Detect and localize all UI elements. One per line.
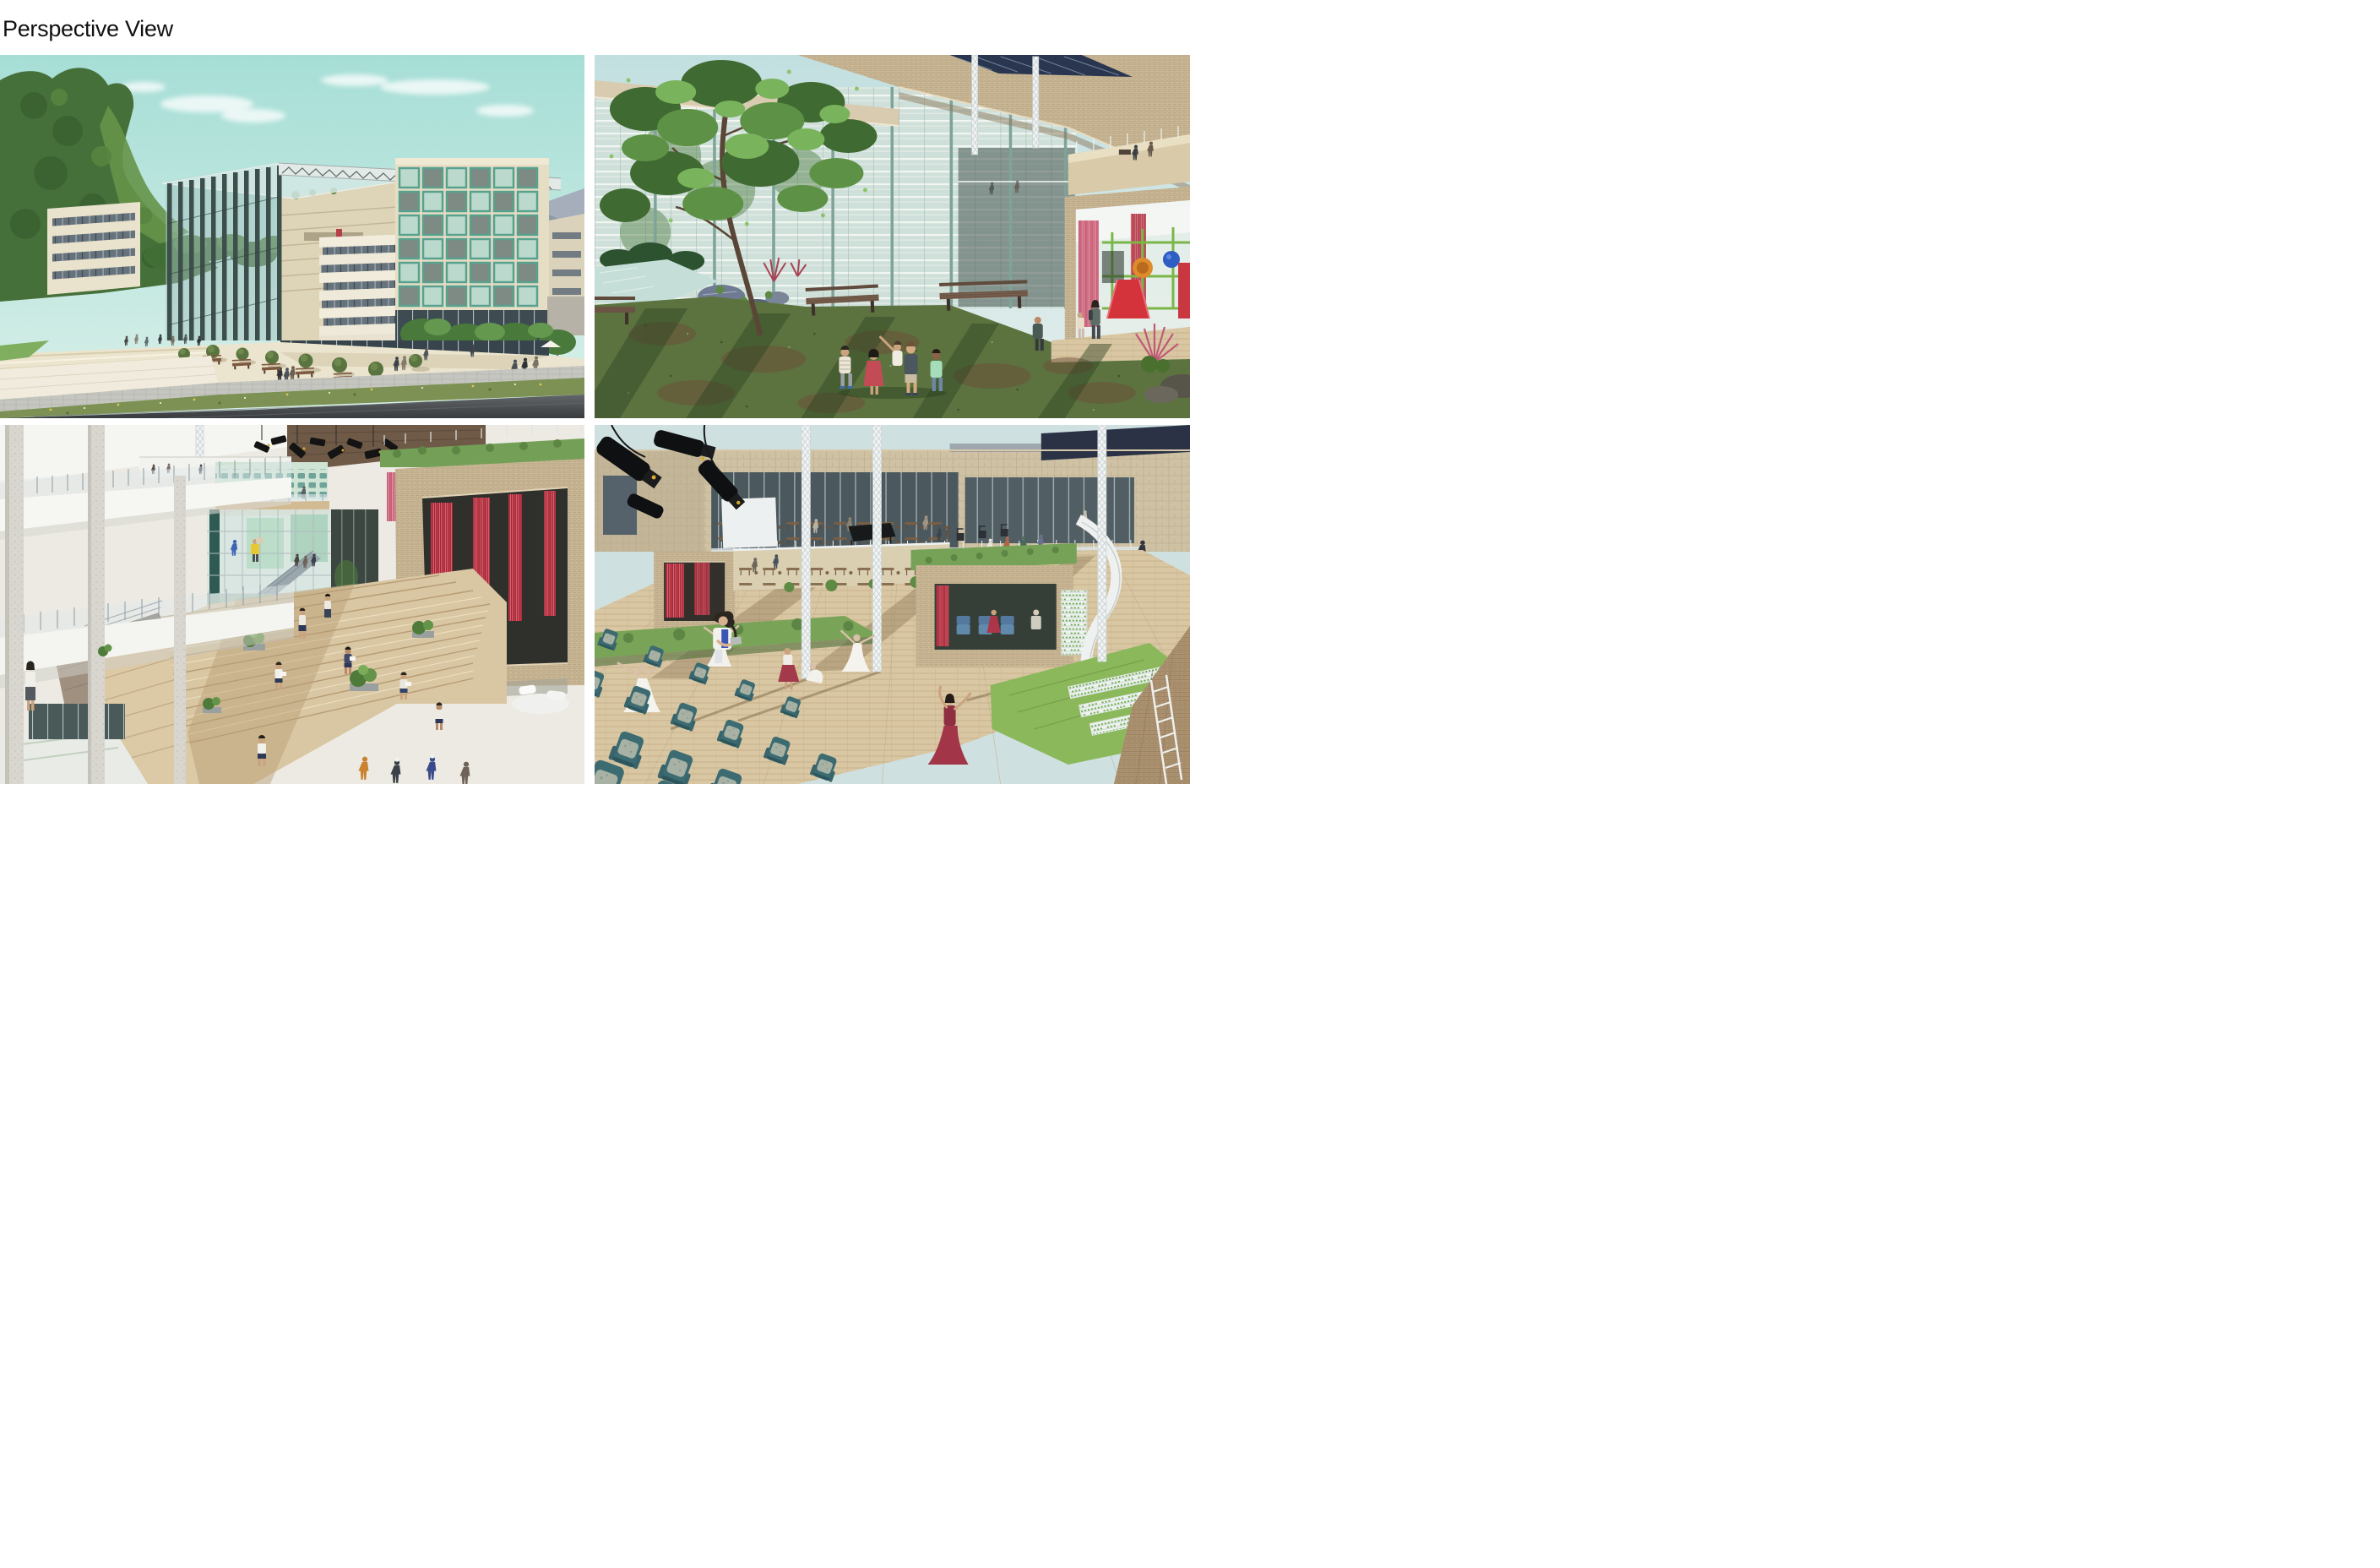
left-office-block	[47, 202, 140, 295]
residential-tower	[395, 158, 549, 344]
hydroponic-rack	[1062, 591, 1087, 655]
lattice-mast	[1033, 57, 1039, 148]
lounge-glazing	[965, 477, 1134, 543]
page-title: Perspective View	[3, 17, 173, 42]
right-blocks	[547, 214, 584, 335]
playroom	[1051, 187, 1190, 362]
presentation-sheet: Perspective View	[0, 0, 1190, 784]
blue-seats	[957, 616, 1014, 634]
render-courtyard-view	[595, 55, 1190, 418]
render-atrium-view	[0, 425, 584, 784]
lattice-mast	[972, 55, 978, 155]
render-rooftop-view	[595, 425, 1190, 784]
render-exterior-view	[0, 55, 584, 418]
cafeteria-glazing	[711, 472, 958, 550]
play-ball	[1163, 251, 1180, 268]
